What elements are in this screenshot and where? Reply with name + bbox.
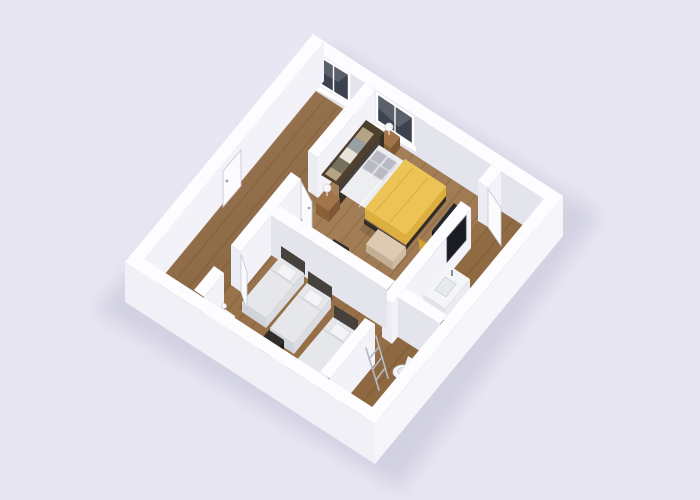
table-lamp: [323, 184, 331, 192]
table-lamp: [222, 304, 227, 309]
floor-plan-render: [0, 0, 700, 500]
door-handle: [308, 207, 311, 210]
door-handle: [226, 180, 229, 183]
table-lamp: [385, 123, 393, 131]
floor-plan-page: [0, 0, 700, 500]
